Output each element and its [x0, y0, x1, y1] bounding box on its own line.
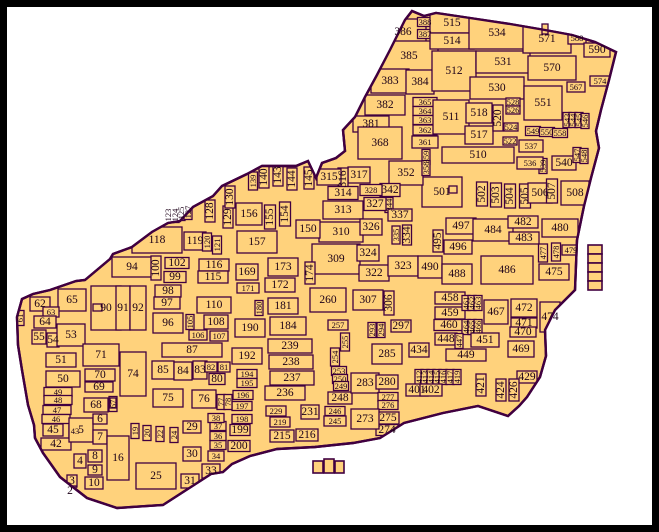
- island-parcel-6[interactable]: [588, 272, 602, 281]
- tract-label-363: 363: [419, 115, 432, 125]
- tract-label-546: 546: [580, 115, 590, 128]
- tract-label-588: 588: [571, 33, 584, 43]
- tract-label-361: 361: [419, 137, 432, 147]
- island-parcel-2[interactable]: [335, 461, 344, 473]
- tract-label-4: 4: [77, 455, 83, 467]
- tract-label-496: 496: [449, 241, 467, 253]
- tract-label-98: 98: [162, 285, 174, 297]
- tract-label-458: 458: [441, 292, 459, 304]
- tract-label-102: 102: [168, 257, 186, 269]
- tract-label-484: 484: [484, 224, 502, 236]
- island-parcel-5[interactable]: [588, 263, 602, 272]
- island-parcel-4[interactable]: [588, 254, 602, 263]
- tract-label-83: 83: [194, 364, 206, 376]
- tract-label-482: 482: [514, 216, 532, 228]
- tract-label-483: 483: [515, 232, 533, 244]
- tract-label-520: 520: [492, 109, 504, 127]
- tract-label-45: 45: [47, 424, 59, 436]
- map-window: 3863883873853833843823813683653643633623…: [0, 0, 659, 532]
- tract-label-574: 574: [594, 76, 608, 86]
- tract-label-477: 477: [538, 247, 548, 260]
- tract-label-385: 385: [400, 50, 418, 62]
- tract-label-198: 198: [236, 414, 249, 424]
- tract-label-22: 22: [155, 430, 165, 439]
- tract-label-323: 323: [394, 260, 412, 272]
- tract-label-150: 150: [299, 223, 317, 235]
- tract-label-8: 8: [92, 450, 98, 462]
- tract-label-328: 328: [365, 185, 378, 195]
- tract-label-74: 74: [127, 368, 139, 380]
- tract-label-514: 514: [443, 35, 461, 47]
- tract-label-239: 239: [281, 340, 299, 352]
- tract-label-335: 335: [391, 229, 401, 242]
- tract-label-195: 195: [241, 378, 254, 388]
- tract-label-534: 534: [488, 27, 506, 39]
- tract-label-522: 522: [504, 136, 517, 146]
- tract-label-248: 248: [331, 392, 349, 404]
- tract-label-362: 362: [419, 125, 432, 135]
- tract-label-381: 381: [362, 118, 380, 130]
- tract-label-184: 184: [279, 320, 297, 332]
- tract-label-474: 474: [541, 311, 559, 323]
- tract-label-118: 118: [149, 234, 166, 246]
- tract-label-97: 97: [161, 297, 173, 309]
- tract-label-567: 567: [570, 82, 583, 92]
- tract-label-255: 255: [340, 336, 350, 349]
- tract-label-50: 50: [57, 373, 69, 385]
- tract-label-254: 254: [330, 350, 340, 364]
- tract-label-51: 51: [55, 354, 67, 366]
- tract-label-55: 55: [33, 331, 45, 343]
- tract-label-69: 69: [93, 381, 105, 393]
- tract-label-358: 358: [421, 162, 431, 175]
- tract-label-260: 260: [319, 294, 337, 306]
- tract-label-307: 307: [359, 294, 377, 306]
- tract-label-337: 337: [391, 209, 409, 221]
- tract-label-475: 475: [545, 266, 563, 278]
- tract-label-42: 42: [50, 438, 62, 450]
- tract-label-571: 571: [538, 33, 556, 45]
- tract-label-36: 36: [214, 431, 223, 441]
- tract-label-246: 246: [329, 406, 342, 416]
- tract-label-199: 199: [231, 424, 249, 436]
- tract-label-495: 495: [432, 232, 444, 250]
- tract-label-309: 309: [327, 253, 345, 265]
- tract-label-526: 526: [507, 105, 520, 115]
- tract-label-451: 451: [476, 334, 494, 346]
- tract-label-87: 87: [186, 344, 198, 356]
- tract-label-181: 181: [274, 300, 292, 312]
- tract-label-127: 127: [183, 206, 193, 219]
- tract-label-35: 35: [214, 440, 223, 450]
- tract-label-310: 310: [332, 226, 350, 238]
- tract-label-24: 24: [169, 430, 179, 439]
- tract-label-145: 145: [303, 169, 315, 187]
- tract-label-10: 10: [88, 477, 100, 489]
- tract-label-9: 9: [92, 464, 98, 476]
- tract-label-467: 467: [487, 306, 505, 318]
- tract-label-82: 82: [207, 362, 216, 372]
- tract-label-70: 70: [94, 369, 106, 381]
- tract-label-276: 276: [382, 400, 395, 410]
- tract-label-78: 78: [223, 398, 233, 407]
- tract-label-507: 507: [546, 182, 558, 200]
- tract-label-173: 173: [274, 261, 292, 273]
- island-parcel-0[interactable]: [313, 461, 323, 473]
- tract-label-229: 229: [270, 406, 283, 416]
- tract-label-449: 449: [457, 349, 475, 361]
- tract-label-402: 402: [422, 384, 440, 396]
- tract-label-219: 219: [274, 417, 287, 427]
- tract-label-172: 172: [271, 279, 289, 291]
- tract-label-85: 85: [157, 364, 169, 376]
- tract-label-479: 479: [565, 245, 578, 255]
- tract-label-108: 108: [207, 316, 225, 328]
- tract-label-424: 424: [495, 381, 507, 399]
- tract-label-237: 237: [283, 372, 301, 384]
- tract-label-67: 67: [108, 400, 118, 409]
- tract-label-324: 324: [359, 247, 377, 259]
- tract-label-530: 530: [488, 82, 506, 94]
- tract-label-46: 46: [52, 414, 61, 424]
- tract-label-190: 190: [241, 322, 259, 334]
- tract-label-5: 5: [78, 424, 84, 436]
- tract-label-590: 590: [588, 44, 606, 56]
- island-parcel-1[interactable]: [324, 459, 334, 473]
- tract-label-216: 216: [298, 429, 316, 441]
- tract-label-120: 120: [202, 236, 212, 249]
- tract-label-368: 368: [371, 137, 389, 149]
- tract-label-429: 429: [518, 371, 536, 383]
- tract-label-31: 31: [184, 475, 196, 487]
- tract-label-34: 34: [212, 451, 221, 461]
- tract-label-490: 490: [421, 261, 439, 273]
- tract-label-387: 387: [419, 29, 432, 39]
- tract-label-19: 19: [130, 427, 140, 436]
- tract-label-25: 25: [150, 470, 162, 482]
- tract-label-61: 61: [15, 314, 25, 323]
- tract-label-359: 359: [421, 151, 431, 164]
- tract-label-515: 515: [443, 17, 461, 29]
- tract-label-76: 76: [198, 393, 210, 405]
- tract-label-472: 472: [515, 302, 533, 314]
- tract-label-502: 502: [476, 185, 488, 203]
- tract-label-174: 174: [304, 264, 316, 282]
- tract-label-155: 155: [264, 208, 276, 226]
- tract-label-280: 280: [378, 376, 396, 388]
- tract-label-570: 570: [543, 62, 561, 74]
- tract-label-342: 342: [381, 184, 399, 196]
- tract-label-294: 294: [376, 323, 386, 337]
- tract-label-274: 274: [378, 424, 396, 436]
- tract-label-100: 100: [150, 259, 162, 277]
- tract-label-196: 196: [237, 390, 250, 400]
- tract-label-75: 75: [162, 392, 174, 404]
- tract-label-334: 334: [401, 226, 413, 244]
- tract-label-510: 510: [469, 149, 487, 161]
- tract-label-16: 16: [112, 452, 124, 464]
- tract-label-384: 384: [411, 76, 429, 88]
- tract-label-65: 65: [66, 294, 78, 306]
- tract-label-71: 71: [95, 349, 107, 361]
- tract-label-518: 518: [470, 107, 488, 119]
- tract-label-197: 197: [236, 401, 249, 411]
- tract-label-488: 488: [448, 268, 466, 280]
- tract-label-386: 386: [394, 26, 412, 38]
- tract-label-501: 501: [433, 186, 451, 198]
- tract-label-460: 460: [440, 319, 458, 331]
- tract-label-548: 548: [579, 150, 589, 163]
- tract-label-62: 62: [34, 298, 46, 310]
- tract-label-463: 463: [473, 297, 483, 310]
- tract-label-257: 257: [332, 320, 345, 330]
- tract-label-200: 200: [230, 440, 248, 452]
- tract-label-531: 531: [494, 56, 512, 68]
- tract-label-91: 91: [117, 302, 129, 314]
- tract-label-139: 139: [248, 175, 258, 188]
- tract-label-508: 508: [566, 187, 584, 199]
- tract-label-129: 129: [222, 208, 234, 226]
- tract-label-466: 466: [473, 321, 483, 334]
- tract-label-540: 540: [555, 157, 573, 169]
- tract-label-90: 90: [100, 302, 112, 314]
- tract-label-352: 352: [397, 167, 415, 179]
- tract-label-6: 6: [97, 413, 103, 425]
- tract-label-99: 99: [169, 271, 181, 283]
- island-parcel-7[interactable]: [588, 281, 602, 290]
- tract-label-285: 285: [378, 348, 396, 360]
- tract-label-38: 38: [212, 413, 221, 423]
- island-parcel-3[interactable]: [588, 245, 602, 254]
- tract-label-549: 549: [527, 126, 540, 136]
- tract-label-470: 470: [514, 326, 532, 338]
- tract-label-33: 33: [205, 465, 217, 477]
- tract-label-326: 326: [362, 221, 380, 233]
- tract-label-524: 524: [505, 122, 519, 132]
- tract-label-273: 273: [356, 413, 374, 425]
- tract-label-388: 388: [419, 17, 432, 27]
- tract-label-316: 316: [337, 170, 349, 188]
- tract-map-canvas: 3863883873853833843823813683653643633623…: [0, 0, 659, 532]
- tract-label-536: 536: [524, 158, 537, 168]
- tract-label-478: 478: [551, 246, 561, 259]
- tract-label-238: 238: [282, 356, 300, 368]
- tract-label-315: 315: [320, 171, 338, 183]
- tract-label-447: 447: [454, 335, 464, 348]
- tract-label-512: 512: [445, 65, 463, 77]
- tract-label-486: 486: [498, 264, 516, 276]
- tract-label-504: 504: [504, 187, 516, 205]
- tract-label-517: 517: [470, 129, 488, 141]
- tract-label-128: 128: [204, 202, 216, 220]
- tract-label-115: 115: [205, 271, 222, 283]
- tract-label-459: 459: [441, 307, 459, 319]
- tract-label-53: 53: [65, 329, 77, 341]
- tract-label-249: 249: [335, 381, 348, 391]
- tract-label-558: 558: [554, 128, 567, 138]
- tract-label-64: 64: [39, 316, 51, 328]
- tract-label-511: 511: [443, 111, 460, 123]
- tract-label-505: 505: [519, 187, 531, 205]
- tract-label-497: 497: [452, 220, 470, 232]
- tract-label-383: 383: [381, 75, 399, 87]
- tract-label-382: 382: [376, 99, 394, 111]
- tract-label-236: 236: [276, 387, 294, 399]
- tract-label-144: 144: [286, 170, 298, 188]
- tract-label-426: 426: [508, 381, 520, 399]
- tract-label-143: 143: [272, 166, 284, 184]
- tract-label-96: 96: [162, 317, 174, 329]
- tract-label-313: 313: [334, 204, 352, 216]
- tract-label-434: 434: [410, 344, 428, 356]
- tract-label-106: 106: [192, 330, 205, 340]
- tract-label-156: 156: [240, 208, 258, 220]
- tract-label-2: 2: [67, 485, 73, 497]
- tract-label-469: 469: [512, 343, 530, 355]
- tract-label-105: 105: [185, 316, 195, 329]
- tract-label-283: 283: [356, 377, 374, 389]
- tract-label-107: 107: [213, 331, 226, 341]
- tract-label-20: 20: [142, 429, 152, 438]
- tract-label-192: 192: [238, 350, 256, 362]
- tract-label-537: 537: [525, 141, 538, 151]
- tract-label-110: 110: [206, 299, 223, 311]
- tract-label-550: 550: [541, 127, 554, 137]
- tract-label-140: 140: [258, 168, 270, 186]
- tract-label-92: 92: [132, 302, 144, 314]
- tract-label-275: 275: [379, 412, 397, 424]
- tract-label-80: 80: [211, 373, 223, 385]
- tract-label-30: 30: [186, 448, 198, 460]
- tract-label-419: 419: [452, 371, 462, 384]
- tract-label-539: 539: [538, 160, 548, 173]
- tract-label-480: 480: [551, 222, 569, 234]
- tract-label-94: 94: [126, 261, 138, 273]
- tract-label-84: 84: [177, 365, 189, 377]
- tract-label-171: 171: [242, 283, 255, 293]
- tract-label-551: 551: [534, 97, 552, 109]
- tract-label-314: 314: [334, 187, 352, 199]
- tract-label-169: 169: [238, 266, 256, 278]
- tract-label-421: 421: [475, 376, 487, 394]
- tract-label-448: 448: [437, 333, 455, 345]
- tract-label-130: 130: [224, 188, 236, 206]
- tract-label-7: 7: [97, 431, 103, 443]
- tract-label-317: 317: [350, 169, 368, 181]
- tract-label-81: 81: [220, 362, 229, 372]
- tract-label-68: 68: [90, 399, 102, 411]
- tract-label-157: 157: [248, 236, 266, 248]
- tract-label-29: 29: [186, 421, 198, 433]
- tract-label-231: 231: [301, 406, 319, 418]
- tract-label-48: 48: [54, 395, 63, 405]
- tract-label-322: 322: [365, 267, 383, 279]
- tract-label-297: 297: [392, 320, 410, 332]
- tract-label-54: 54: [47, 334, 59, 346]
- tract-label-327: 327: [366, 198, 384, 210]
- tract-label-154: 154: [279, 205, 291, 223]
- tract-label-245: 245: [329, 416, 342, 426]
- tract-label-121: 121: [212, 239, 222, 252]
- tract-label-180: 180: [254, 302, 264, 315]
- tract-label-116: 116: [206, 259, 223, 271]
- tract-label-503: 503: [490, 186, 502, 204]
- tract-label-215: 215: [273, 430, 291, 442]
- tract-label-306: 306: [383, 294, 395, 312]
